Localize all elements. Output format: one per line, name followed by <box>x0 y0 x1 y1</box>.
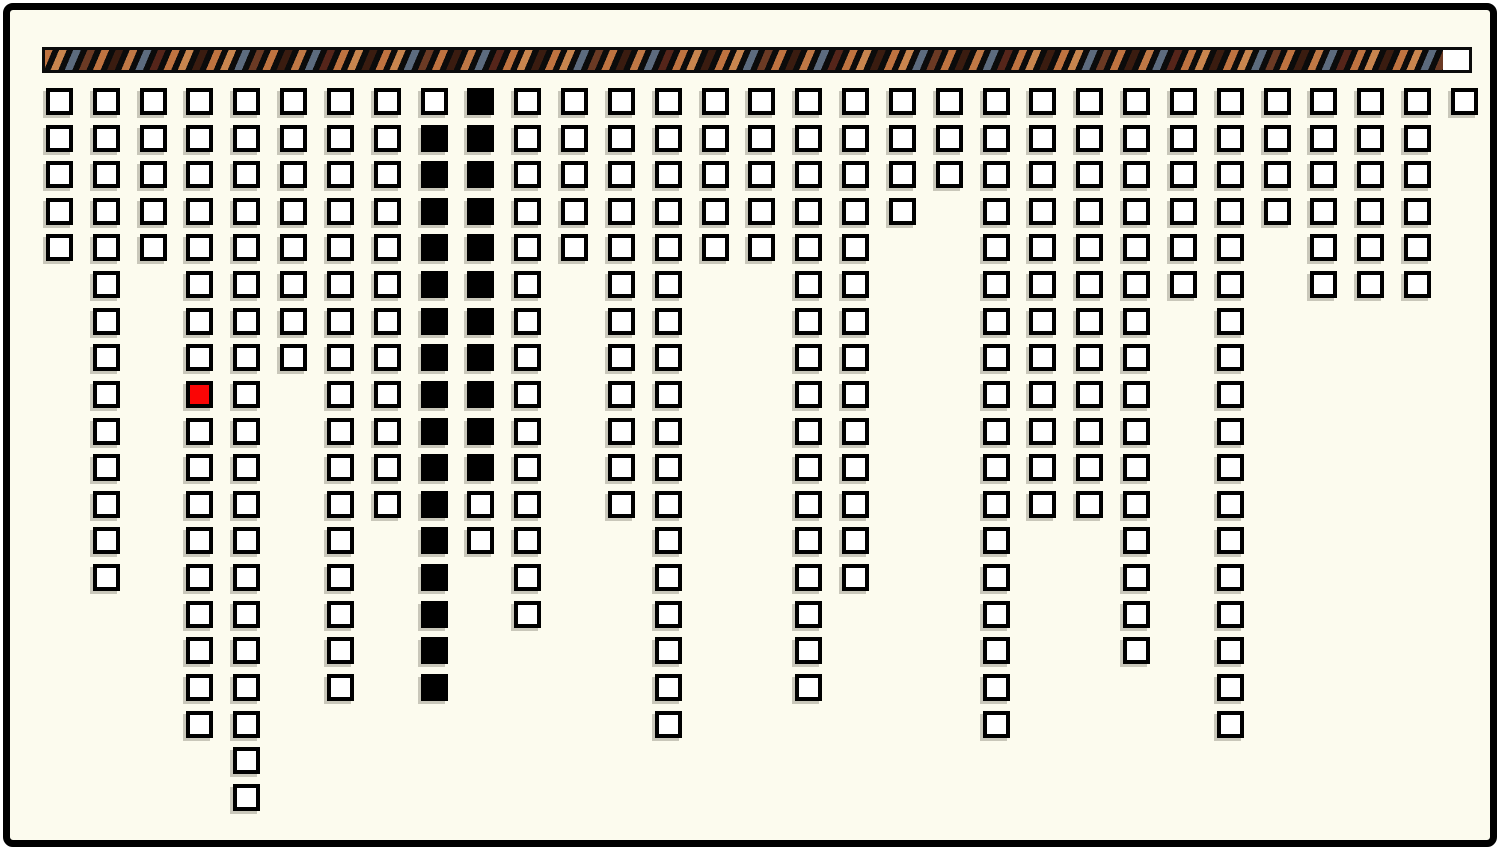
grid-cell[interactable] <box>655 601 682 628</box>
grid-cell[interactable] <box>233 344 260 371</box>
grid-cell[interactable] <box>1310 161 1337 188</box>
grid-cell[interactable] <box>795 234 822 261</box>
grid-cell[interactable] <box>186 308 213 335</box>
grid-cell[interactable] <box>1076 308 1103 335</box>
grid-cell-filled[interactable] <box>421 564 448 591</box>
grid-cell[interactable] <box>186 198 213 225</box>
grid-cell[interactable] <box>421 88 448 115</box>
grid-cell[interactable] <box>1076 491 1103 518</box>
grid-cell[interactable] <box>889 125 916 152</box>
grid-cell[interactable] <box>93 527 120 554</box>
grid-cell[interactable] <box>327 381 354 408</box>
grid-cell[interactable] <box>983 161 1010 188</box>
grid-cell[interactable] <box>561 88 588 115</box>
grid-cell[interactable] <box>93 88 120 115</box>
grid-cell[interactable] <box>514 418 541 445</box>
grid-cell[interactable] <box>280 234 307 261</box>
grid-cell[interactable] <box>655 344 682 371</box>
grid-cell[interactable] <box>514 454 541 481</box>
grid-cell[interactable] <box>327 454 354 481</box>
grid-cell[interactable] <box>514 308 541 335</box>
grid-cell[interactable] <box>1217 344 1244 371</box>
grid-cell[interactable] <box>1029 125 1056 152</box>
grid-cell[interactable] <box>1076 271 1103 298</box>
grid-cell[interactable] <box>983 88 1010 115</box>
grid-cell[interactable] <box>1076 198 1103 225</box>
grid-cell[interactable] <box>842 161 869 188</box>
grid-cell[interactable] <box>46 234 73 261</box>
grid-cell[interactable] <box>374 308 401 335</box>
grid-cell[interactable] <box>186 527 213 554</box>
grid-cell[interactable] <box>842 88 869 115</box>
grid-cell[interactable] <box>1404 271 1431 298</box>
grid-cell[interactable] <box>1029 88 1056 115</box>
grid-cell[interactable] <box>702 198 729 225</box>
grid-cell[interactable] <box>233 491 260 518</box>
grid-cell-filled[interactable] <box>467 125 494 152</box>
grid-cell[interactable] <box>983 344 1010 371</box>
grid-cell[interactable] <box>1217 601 1244 628</box>
grid-cell[interactable] <box>186 125 213 152</box>
grid-cell[interactable] <box>1404 161 1431 188</box>
grid-cell[interactable] <box>1217 527 1244 554</box>
grid-cell-selected[interactable] <box>186 381 213 408</box>
grid-cell[interactable] <box>93 198 120 225</box>
grid-cell[interactable] <box>1217 564 1244 591</box>
grid-cell[interactable] <box>608 418 635 445</box>
grid-cell[interactable] <box>983 381 1010 408</box>
grid-cell-filled[interactable] <box>421 125 448 152</box>
grid-cell[interactable] <box>186 454 213 481</box>
grid-cell[interactable] <box>233 308 260 335</box>
grid-cell[interactable] <box>93 381 120 408</box>
grid-cell[interactable] <box>374 198 401 225</box>
grid-cell[interactable] <box>655 527 682 554</box>
grid-cell[interactable] <box>233 381 260 408</box>
grid-cell[interactable] <box>1217 454 1244 481</box>
grid-cell[interactable] <box>1123 564 1150 591</box>
grid-cell-filled[interactable] <box>467 381 494 408</box>
grid-cell[interactable] <box>1123 637 1150 664</box>
grid-cell[interactable] <box>1076 88 1103 115</box>
grid-cell[interactable] <box>467 527 494 554</box>
grid-cell[interactable] <box>514 234 541 261</box>
grid-cell[interactable] <box>280 198 307 225</box>
grid-cell[interactable] <box>889 161 916 188</box>
grid-cell[interactable] <box>327 88 354 115</box>
grid-cell[interactable] <box>1123 125 1150 152</box>
grid-cell[interactable] <box>655 125 682 152</box>
grid-cell-filled[interactable] <box>421 381 448 408</box>
grid-cell-filled[interactable] <box>467 418 494 445</box>
grid-cell[interactable] <box>795 454 822 481</box>
grid-cell[interactable] <box>608 381 635 408</box>
grid-cell[interactable] <box>186 88 213 115</box>
grid-cell[interactable] <box>983 418 1010 445</box>
grid-cell[interactable] <box>1217 234 1244 261</box>
grid-cell-filled[interactable] <box>467 454 494 481</box>
grid-cell[interactable] <box>327 234 354 261</box>
grid-cell[interactable] <box>983 125 1010 152</box>
grid-cell[interactable] <box>983 674 1010 701</box>
grid-cell[interactable] <box>702 234 729 261</box>
grid-cell[interactable] <box>702 88 729 115</box>
grid-cell[interactable] <box>655 637 682 664</box>
grid-cell-filled[interactable] <box>421 271 448 298</box>
grid-cell[interactable] <box>1217 381 1244 408</box>
grid-cell[interactable] <box>1217 271 1244 298</box>
grid-cell[interactable] <box>936 88 963 115</box>
grid-cell[interactable] <box>1170 271 1197 298</box>
grid-cell[interactable] <box>1217 125 1244 152</box>
grid-cell[interactable] <box>1076 454 1103 481</box>
grid-cell[interactable] <box>655 711 682 738</box>
grid-cell[interactable] <box>1451 88 1478 115</box>
grid-cell[interactable] <box>514 601 541 628</box>
grid-cell-filled[interactable] <box>467 308 494 335</box>
grid-cell[interactable] <box>655 161 682 188</box>
grid-cell[interactable] <box>1357 125 1384 152</box>
grid-cell[interactable] <box>1029 381 1056 408</box>
grid-cell[interactable] <box>748 88 775 115</box>
grid-cell[interactable] <box>514 344 541 371</box>
grid-cell[interactable] <box>280 161 307 188</box>
grid-cell[interactable] <box>842 527 869 554</box>
grid-cell[interactable] <box>46 125 73 152</box>
grid-cell-filled[interactable] <box>421 308 448 335</box>
grid-cell[interactable] <box>327 308 354 335</box>
grid-cell[interactable] <box>842 381 869 408</box>
grid-cell[interactable] <box>983 271 1010 298</box>
grid-cell[interactable] <box>1029 454 1056 481</box>
grid-cell[interactable] <box>1123 418 1150 445</box>
grid-cell[interactable] <box>795 674 822 701</box>
grid-cell[interactable] <box>655 308 682 335</box>
grid-cell[interactable] <box>842 418 869 445</box>
grid-cell[interactable] <box>514 564 541 591</box>
grid-cell[interactable] <box>327 527 354 554</box>
grid-cell[interactable] <box>655 88 682 115</box>
grid-cell[interactable] <box>795 344 822 371</box>
grid-cell[interactable] <box>233 125 260 152</box>
grid-cell[interactable] <box>186 711 213 738</box>
grid-cell[interactable] <box>374 491 401 518</box>
grid-cell[interactable] <box>1029 198 1056 225</box>
grid-cell[interactable] <box>655 198 682 225</box>
grid-cell[interactable] <box>514 271 541 298</box>
grid-cell[interactable] <box>374 418 401 445</box>
grid-cell[interactable] <box>1123 601 1150 628</box>
grid-cell[interactable] <box>186 161 213 188</box>
grid-cell[interactable] <box>1310 125 1337 152</box>
grid-cell[interactable] <box>327 637 354 664</box>
grid-cell[interactable] <box>233 564 260 591</box>
grid-cell[interactable] <box>795 125 822 152</box>
grid-cell[interactable] <box>327 161 354 188</box>
grid-cell[interactable] <box>1123 271 1150 298</box>
grid-cell[interactable] <box>280 308 307 335</box>
grid-cell[interactable] <box>1029 234 1056 261</box>
grid-cell[interactable] <box>983 527 1010 554</box>
grid-cell[interactable] <box>702 125 729 152</box>
grid-cell[interactable] <box>1264 125 1291 152</box>
grid-cell[interactable] <box>186 234 213 261</box>
grid-cell[interactable] <box>233 271 260 298</box>
grid-cell[interactable] <box>327 491 354 518</box>
grid-cell[interactable] <box>233 454 260 481</box>
grid-cell[interactable] <box>936 125 963 152</box>
grid-cell[interactable] <box>842 271 869 298</box>
grid-cell-filled[interactable] <box>467 161 494 188</box>
grid-cell[interactable] <box>374 344 401 371</box>
grid-cell[interactable] <box>233 711 260 738</box>
grid-cell[interactable] <box>608 161 635 188</box>
grid-cell[interactable] <box>186 418 213 445</box>
grid-cell[interactable] <box>233 418 260 445</box>
grid-cell[interactable] <box>1123 308 1150 335</box>
grid-cell[interactable] <box>233 234 260 261</box>
grid-cell[interactable] <box>140 125 167 152</box>
grid-cell[interactable] <box>1123 381 1150 408</box>
grid-cell[interactable] <box>983 454 1010 481</box>
grid-cell[interactable] <box>233 198 260 225</box>
grid-cell[interactable] <box>1123 88 1150 115</box>
grid-cell[interactable] <box>327 418 354 445</box>
grid-cell[interactable] <box>233 527 260 554</box>
grid-cell[interactable] <box>1357 161 1384 188</box>
grid-cell[interactable] <box>186 674 213 701</box>
grid-cell[interactable] <box>983 198 1010 225</box>
grid-cell[interactable] <box>1310 271 1337 298</box>
grid-cell[interactable] <box>795 271 822 298</box>
grid-cell[interactable] <box>983 234 1010 261</box>
grid-cell[interactable] <box>93 161 120 188</box>
grid-cell[interactable] <box>1264 198 1291 225</box>
grid-cell[interactable] <box>1076 418 1103 445</box>
grid-cell[interactable] <box>233 747 260 774</box>
grid-cell[interactable] <box>186 344 213 371</box>
grid-cell[interactable] <box>655 491 682 518</box>
grid-cell[interactable] <box>93 308 120 335</box>
grid-cell[interactable] <box>327 674 354 701</box>
grid-cell[interactable] <box>514 381 541 408</box>
grid-cell[interactable] <box>748 125 775 152</box>
grid-cell[interactable] <box>140 161 167 188</box>
grid-cell[interactable] <box>93 454 120 481</box>
grid-cell[interactable] <box>842 454 869 481</box>
grid-cell[interactable] <box>280 88 307 115</box>
grid-cell[interactable] <box>46 88 73 115</box>
grid-cell[interactable] <box>327 271 354 298</box>
grid-cell[interactable] <box>748 198 775 225</box>
grid-cell[interactable] <box>1404 88 1431 115</box>
grid-cell[interactable] <box>1404 234 1431 261</box>
grid-cell[interactable] <box>655 418 682 445</box>
grid-cell-filled[interactable] <box>467 271 494 298</box>
grid-cell[interactable] <box>1170 161 1197 188</box>
grid-cell[interactable] <box>1170 198 1197 225</box>
grid-cell-filled[interactable] <box>421 234 448 261</box>
grid-cell[interactable] <box>233 674 260 701</box>
grid-cell[interactable] <box>608 198 635 225</box>
grid-cell[interactable] <box>842 125 869 152</box>
grid-cell[interactable] <box>1076 161 1103 188</box>
grid-cell[interactable] <box>233 161 260 188</box>
grid-cell[interactable] <box>1170 125 1197 152</box>
grid-cell-filled[interactable] <box>467 198 494 225</box>
grid-cell[interactable] <box>93 234 120 261</box>
grid-cell[interactable] <box>983 491 1010 518</box>
grid-cell[interactable] <box>93 271 120 298</box>
grid-cell[interactable] <box>186 637 213 664</box>
grid-cell[interactable] <box>1217 674 1244 701</box>
grid-cell[interactable] <box>983 711 1010 738</box>
grid-cell[interactable] <box>983 308 1010 335</box>
grid-cell[interactable] <box>93 418 120 445</box>
grid-cell[interactable] <box>280 271 307 298</box>
grid-cell[interactable] <box>233 601 260 628</box>
grid-cell[interactable] <box>327 344 354 371</box>
grid-cell[interactable] <box>374 88 401 115</box>
grid-cell[interactable] <box>608 454 635 481</box>
grid-cell[interactable] <box>233 784 260 811</box>
grid-cell[interactable] <box>1310 198 1337 225</box>
grid-cell[interactable] <box>608 308 635 335</box>
grid-cell[interactable] <box>1029 308 1056 335</box>
grid-cell[interactable] <box>842 564 869 591</box>
grid-cell[interactable] <box>140 198 167 225</box>
grid-cell[interactable] <box>280 125 307 152</box>
grid-cell-filled[interactable] <box>421 637 448 664</box>
grid-cell[interactable] <box>702 161 729 188</box>
grid-cell[interactable] <box>514 491 541 518</box>
grid-cell[interactable] <box>327 198 354 225</box>
grid-cell[interactable] <box>1310 88 1337 115</box>
grid-cell[interactable] <box>655 674 682 701</box>
grid-cell[interactable] <box>561 234 588 261</box>
grid-cell[interactable] <box>280 344 307 371</box>
grid-cell[interactable] <box>1217 88 1244 115</box>
grid-cell[interactable] <box>1076 125 1103 152</box>
grid-cell[interactable] <box>140 88 167 115</box>
grid-cell-filled[interactable] <box>421 674 448 701</box>
grid-cell[interactable] <box>1357 234 1384 261</box>
grid-cell[interactable] <box>561 161 588 188</box>
grid-cell[interactable] <box>1264 161 1291 188</box>
grid-cell-filled[interactable] <box>421 454 448 481</box>
grid-cell[interactable] <box>93 344 120 371</box>
grid-cell[interactable] <box>93 564 120 591</box>
grid-cell[interactable] <box>795 418 822 445</box>
grid-cell[interactable] <box>561 198 588 225</box>
grid-cell[interactable] <box>842 308 869 335</box>
grid-cell[interactable] <box>1217 637 1244 664</box>
grid-cell[interactable] <box>842 198 869 225</box>
grid-cell[interactable] <box>374 271 401 298</box>
grid-cell[interactable] <box>795 637 822 664</box>
grid-cell[interactable] <box>1076 234 1103 261</box>
grid-cell[interactable] <box>1217 308 1244 335</box>
grid-cell[interactable] <box>795 198 822 225</box>
grid-cell[interactable] <box>186 564 213 591</box>
grid-cell[interactable] <box>1357 198 1384 225</box>
grid-cell[interactable] <box>93 491 120 518</box>
grid-cell[interactable] <box>1170 88 1197 115</box>
grid-cell[interactable] <box>1123 161 1150 188</box>
grid-cell[interactable] <box>1029 161 1056 188</box>
grid-cell[interactable] <box>1357 88 1384 115</box>
grid-cell[interactable] <box>140 234 167 261</box>
grid-cell-filled[interactable] <box>421 161 448 188</box>
grid-cell[interactable] <box>1123 454 1150 481</box>
grid-cell[interactable] <box>655 271 682 298</box>
grid-cell[interactable] <box>795 88 822 115</box>
grid-cell[interactable] <box>795 564 822 591</box>
grid-cell[interactable] <box>467 491 494 518</box>
grid-cell[interactable] <box>1029 271 1056 298</box>
grid-cell-filled[interactable] <box>421 601 448 628</box>
grid-cell[interactable] <box>1404 198 1431 225</box>
grid-cell[interactable] <box>1217 198 1244 225</box>
grid-cell[interactable] <box>983 564 1010 591</box>
grid-cell[interactable] <box>327 125 354 152</box>
grid-cell[interactable] <box>1029 418 1056 445</box>
grid-cell[interactable] <box>514 161 541 188</box>
grid-cell[interactable] <box>374 454 401 481</box>
grid-cell-filled[interactable] <box>421 491 448 518</box>
grid-cell[interactable] <box>748 234 775 261</box>
grid-cell[interactable] <box>514 527 541 554</box>
grid-cell[interactable] <box>374 125 401 152</box>
grid-cell[interactable] <box>1217 491 1244 518</box>
grid-cell[interactable] <box>655 454 682 481</box>
grid-cell[interactable] <box>795 601 822 628</box>
grid-cell[interactable] <box>655 234 682 261</box>
grid-cell[interactable] <box>795 381 822 408</box>
grid-cell[interactable] <box>186 271 213 298</box>
grid-cell[interactable] <box>1310 234 1337 261</box>
grid-cell-filled[interactable] <box>421 527 448 554</box>
grid-cell[interactable] <box>514 88 541 115</box>
grid-cell[interactable] <box>1217 711 1244 738</box>
grid-cell[interactable] <box>608 491 635 518</box>
grid-cell[interactable] <box>1404 125 1431 152</box>
grid-cell[interactable] <box>1076 381 1103 408</box>
grid-cell[interactable] <box>327 564 354 591</box>
grid-cell[interactable] <box>748 161 775 188</box>
grid-cell[interactable] <box>1264 88 1291 115</box>
grid-cell[interactable] <box>186 491 213 518</box>
grid-cell[interactable] <box>983 601 1010 628</box>
grid-cell[interactable] <box>46 198 73 225</box>
grid-cell[interactable] <box>655 381 682 408</box>
grid-cell[interactable] <box>608 125 635 152</box>
grid-cell[interactable] <box>514 125 541 152</box>
grid-cell[interactable] <box>374 234 401 261</box>
grid-cell[interactable] <box>936 161 963 188</box>
grid-cell[interactable] <box>1076 344 1103 371</box>
grid-cell[interactable] <box>655 564 682 591</box>
grid-cell[interactable] <box>233 88 260 115</box>
grid-cell-filled[interactable] <box>421 344 448 371</box>
grid-cell[interactable] <box>889 88 916 115</box>
grid-cell[interactable] <box>795 491 822 518</box>
grid-cell[interactable] <box>1029 344 1056 371</box>
grid-cell[interactable] <box>1170 234 1197 261</box>
grid-cell[interactable] <box>795 308 822 335</box>
grid-cell[interactable] <box>795 161 822 188</box>
grid-cell[interactable] <box>186 601 213 628</box>
